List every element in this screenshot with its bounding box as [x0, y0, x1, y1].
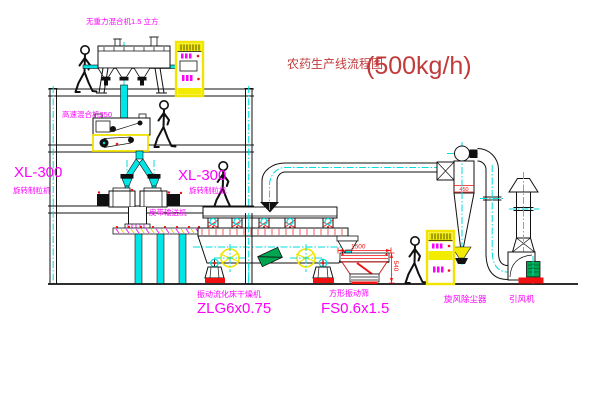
- conveyor-leg: [157, 234, 164, 284]
- dryer-rail-hatch: [202, 229, 342, 235]
- conveyor-leg: [135, 234, 142, 284]
- person-figure-4: [406, 237, 427, 283]
- label-sieve-model: FS0.6x1.5: [321, 300, 389, 317]
- exhaust-stack: [509, 172, 539, 252]
- label-granulator-right-name: 旋转制粒机: [189, 185, 227, 195]
- process-flow-drawing: 450: [0, 0, 600, 403]
- label-granulator-right-model: XL-300: [178, 167, 226, 184]
- label-cyclone: 旋风除尘器: [444, 294, 487, 304]
- dimension-540: 540: [389, 253, 399, 283]
- drawing-canvas: 450: [0, 0, 600, 403]
- conveyor-leg: [179, 234, 186, 284]
- cyclone-downpipe: [478, 149, 509, 280]
- label-granulator-left-model: XL-300: [14, 164, 62, 181]
- label-gravity-mixer: 无重力混合机1.5 立方: [86, 16, 159, 26]
- exhaust-duct: [260, 163, 452, 213]
- induced-draft-fan: [508, 252, 544, 284]
- high-speed-mixer: [93, 114, 150, 151]
- label-fan: 引风机: [509, 294, 535, 304]
- label-high-speed-mixer: 高速混合机350: [62, 109, 112, 119]
- granulator-left: [97, 188, 135, 207]
- control-cabinet-top: [176, 42, 203, 96]
- dryer-spring-mounts: [208, 218, 333, 228]
- label-dryer-name: 振动流化床干燥机: [197, 289, 261, 299]
- mixer-feed-pipe: [121, 85, 128, 118]
- cyclone-outlet-elbow: [455, 146, 470, 161]
- sieve-length-dim: 1500: [351, 244, 366, 251]
- label-dryer-model: ZLG6x0.75: [197, 300, 271, 317]
- label-sieve-name: 方形振动筛: [329, 288, 369, 298]
- cyclone-dim-label: 450: [459, 187, 468, 193]
- discharge-chute: [125, 207, 150, 229]
- sieve-height-dim: 540: [392, 261, 399, 272]
- fluid-bed-dryer: [193, 207, 358, 283]
- granulator-right: [140, 188, 182, 207]
- person-figure-2: [155, 101, 176, 147]
- belt-conveyor: [113, 226, 211, 284]
- person-figure-1: [76, 46, 97, 92]
- fan-base: [519, 278, 544, 284]
- floor-slab-middle: [48, 145, 254, 152]
- label-belt-conveyor: 皮带输送机: [149, 207, 187, 217]
- control-cabinet-sieve: [427, 231, 454, 284]
- page-title-capacity: (500kg/h): [366, 52, 472, 80]
- wall-left: [49, 86, 58, 284]
- label-granulator-left-name: 旋转制粒机: [13, 185, 51, 195]
- duct-reducer: [437, 162, 454, 180]
